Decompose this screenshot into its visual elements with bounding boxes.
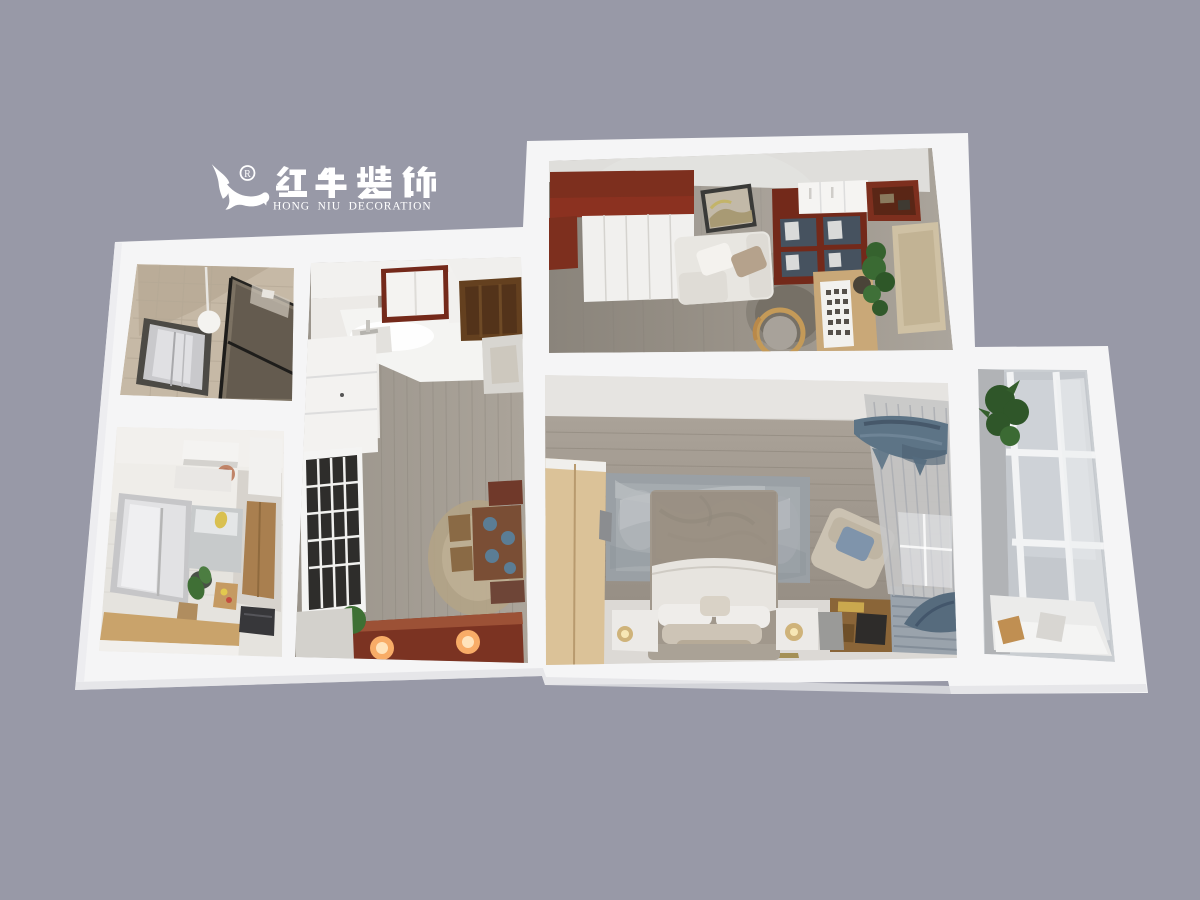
svg-text:HONG NIU DECORATION: HONG NIU DECORATION <box>273 201 432 213</box>
svg-text:R: R <box>244 169 251 180</box>
